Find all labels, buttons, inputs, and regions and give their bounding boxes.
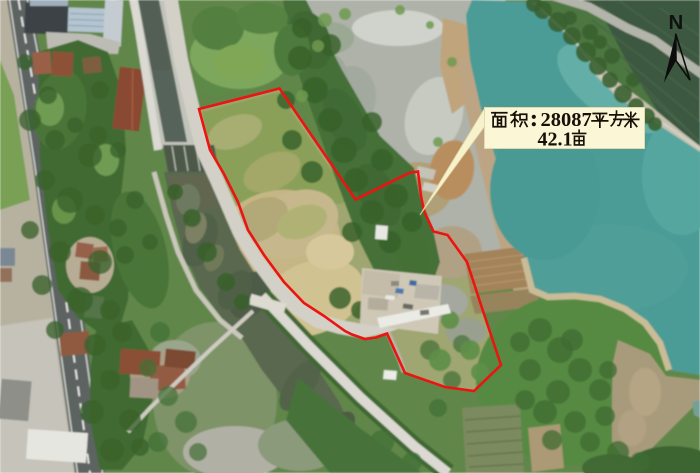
svg-text:28087: 28087 (541, 109, 592, 131)
svg-text:42.1: 42.1 (538, 129, 573, 151)
svg-text:N: N (669, 11, 684, 34)
